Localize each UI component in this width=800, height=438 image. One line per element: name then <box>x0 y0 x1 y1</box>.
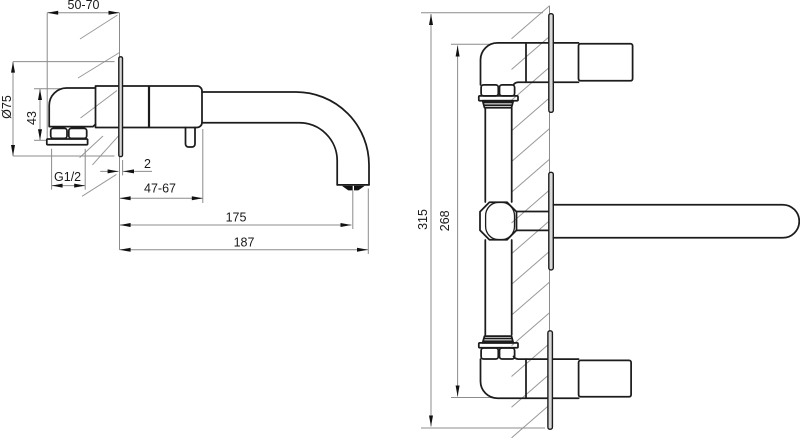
svg-text:175: 175 <box>226 211 247 225</box>
svg-text:Ø75: Ø75 <box>0 95 14 119</box>
svg-text:G1/2: G1/2 <box>54 170 81 184</box>
svg-text:2: 2 <box>144 157 151 171</box>
svg-text:50-70: 50-70 <box>68 0 100 12</box>
svg-text:43: 43 <box>25 111 39 125</box>
svg-text:268: 268 <box>438 210 452 231</box>
svg-text:47-67: 47-67 <box>144 182 176 196</box>
svg-text:315: 315 <box>416 209 430 230</box>
svg-text:187: 187 <box>234 236 255 250</box>
